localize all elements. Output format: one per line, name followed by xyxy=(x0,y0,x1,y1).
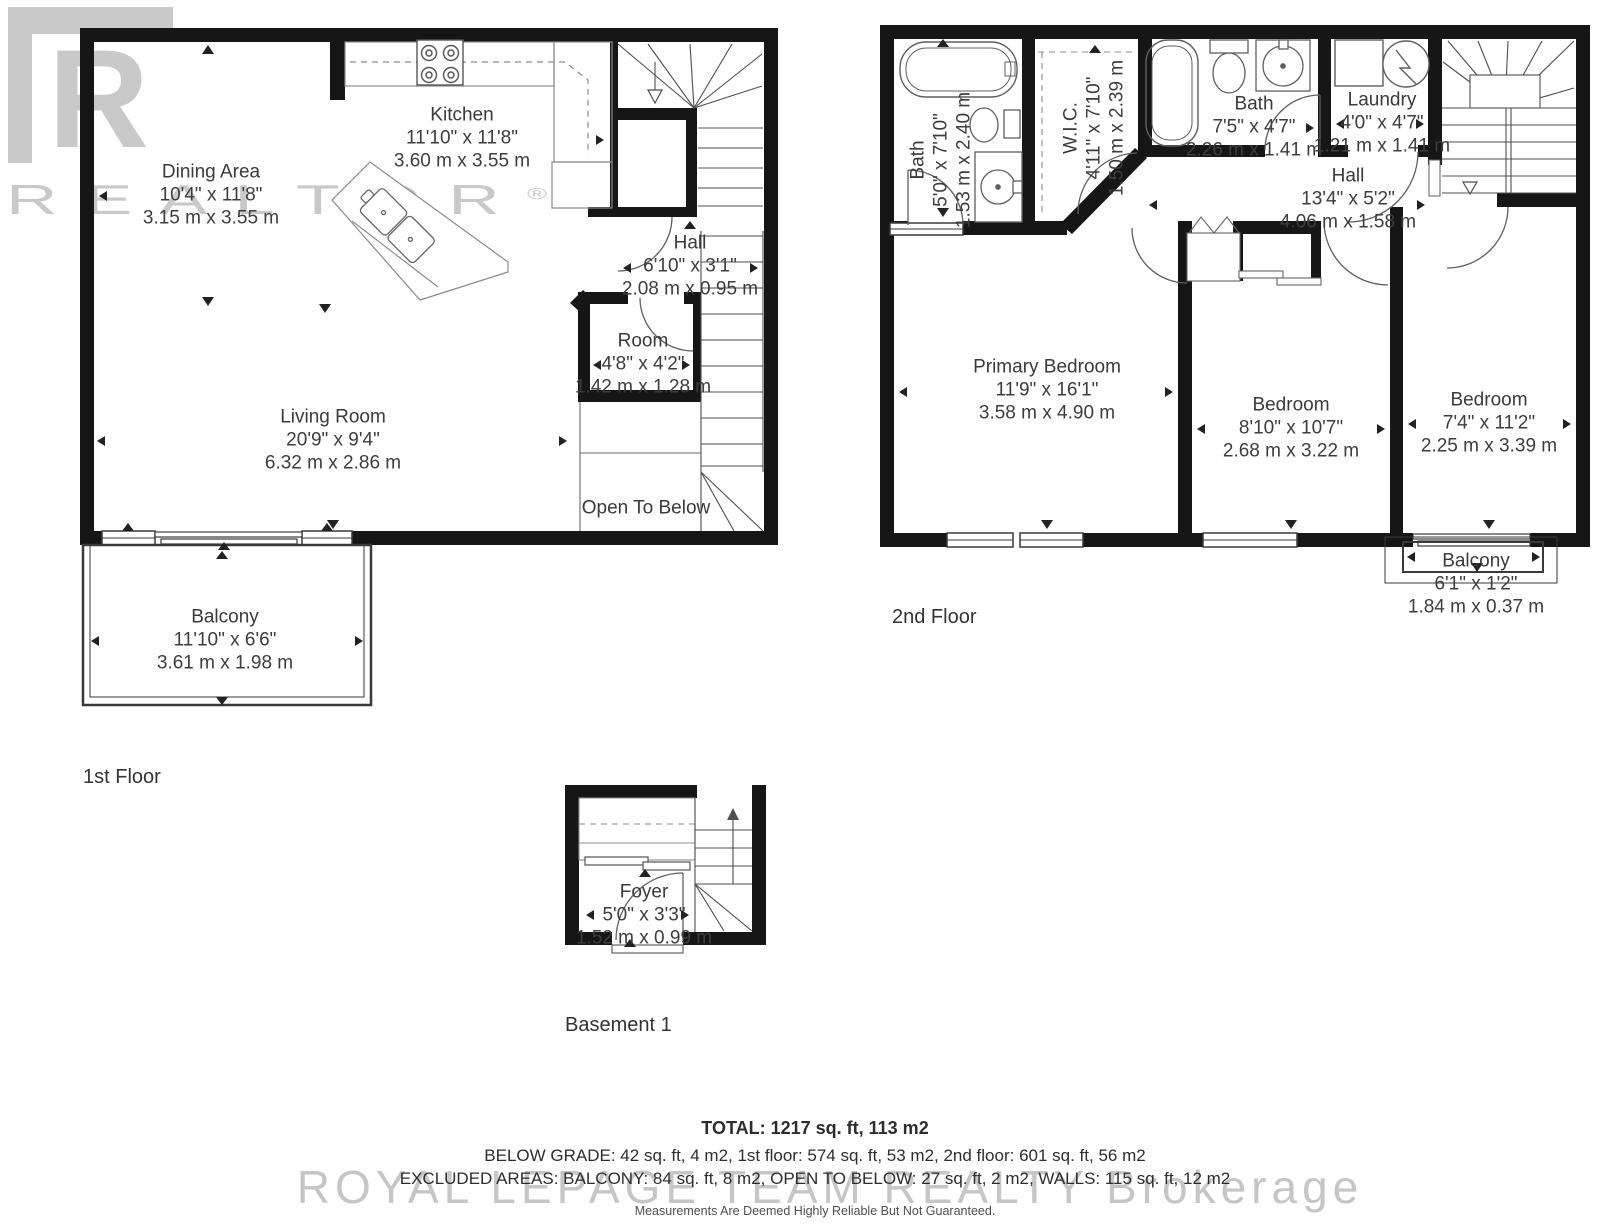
toilet-icon xyxy=(1210,40,1248,93)
window xyxy=(1429,160,1440,196)
room-label-wic: W.I.C. 4'11" x 7'10" 1.50 m x 2.39 m xyxy=(1060,60,1129,196)
room-label-foyer: Foyer 5'0" x 3'3" 1.52 m x 0.99 m xyxy=(576,881,712,950)
stairs-down-arrow-icon xyxy=(1463,182,1477,194)
floor-title-1st: 1st Floor xyxy=(83,766,161,789)
washer-icon xyxy=(1335,40,1429,87)
disclaimer-text: Measurements Are Deemed Highly Reliable … xyxy=(0,1204,1600,1218)
room-label-hall-2nd: Hall 13'4" x 5'2" 4.06 m x 1.58 m xyxy=(1280,165,1416,234)
room-label-bath-middle: Bath 7'5" x 4'7" 2.26 m x 1.41 m xyxy=(1186,93,1322,162)
room-label-kitchen: Kitchen 11'10" x 11'8" 3.60 m x 3.55 m xyxy=(394,104,530,173)
room-label-balcony-2nd: Balcony 6'1" x 1'2" 1.84 m x 0.37 m xyxy=(1408,550,1544,619)
room-label-open-to-below: Open To Below xyxy=(582,497,711,520)
toilet-icon xyxy=(970,108,1020,142)
summary-below-grade: BELOW GRADE: 42 sq. ft, 4 m2, 1st floor:… xyxy=(0,1146,1600,1166)
room-label-bedroom-right: Bedroom 7'4" x 11'2" 2.25 m x 3.39 m xyxy=(1421,389,1557,458)
stove-icon xyxy=(417,40,463,85)
room-label-living-room: Living Room 20'9" x 9'4" 6.32 m x 2.86 m xyxy=(265,406,401,475)
room-label-laundry: Laundry 4'0" x 4'7" 1.21 m x 1.41 m xyxy=(1314,89,1450,158)
summary-excluded-areas: EXCLUDED AREAS: BALCONY: 84 sq. ft, 8 m2… xyxy=(0,1169,1600,1189)
floor-title-basement: Basement 1 xyxy=(565,1014,672,1037)
room-label-bath-left: Bath 5'0" x 7'10" 1.53 m x 2.40 m xyxy=(907,92,976,228)
landing xyxy=(579,798,695,860)
room-label-primary-bedroom: Primary Bedroom 11'9" x 16'1" 3.58 m x 4… xyxy=(973,356,1121,425)
floor-title-2nd: 2nd Floor xyxy=(892,606,977,629)
room-label-balcony-1st: Balcony 11'10" x 6'6" 3.61 m x 1.98 m xyxy=(157,606,293,675)
window xyxy=(585,857,690,870)
stairs-icon xyxy=(1442,41,1576,193)
sliding-door xyxy=(155,532,302,544)
stairs-up-arrow-icon xyxy=(727,808,739,820)
room-label-hall-1st: Hall 6'10" x 3'1" 2.08 m x 0.95 m xyxy=(622,232,758,301)
sink-icon xyxy=(1256,40,1310,91)
sink-icon xyxy=(975,152,1022,222)
room-label-room: Room 4'8" x 4'2" 1.42 m x 1.28 m xyxy=(575,330,711,399)
room-label-bedroom-middle: Bedroom 8'10" x 10'7" 2.68 m x 3.22 m xyxy=(1223,394,1359,463)
bathtub-icon xyxy=(900,42,1017,97)
floor-plan-page: R REALTOR® ROYAL LEPAGE TEAM REALTY Brok… xyxy=(0,0,1600,1224)
room-label-dining-area: Dining Area 10'4" x 11'8" 3.15 m x 3.55 … xyxy=(143,161,279,230)
stair-landing xyxy=(1470,75,1540,108)
stairs-down-arrow-icon xyxy=(648,90,662,103)
summary-total: TOTAL: 1217 sq. ft, 113 m2 xyxy=(0,1118,1600,1139)
sliding-door xyxy=(1413,534,1530,546)
